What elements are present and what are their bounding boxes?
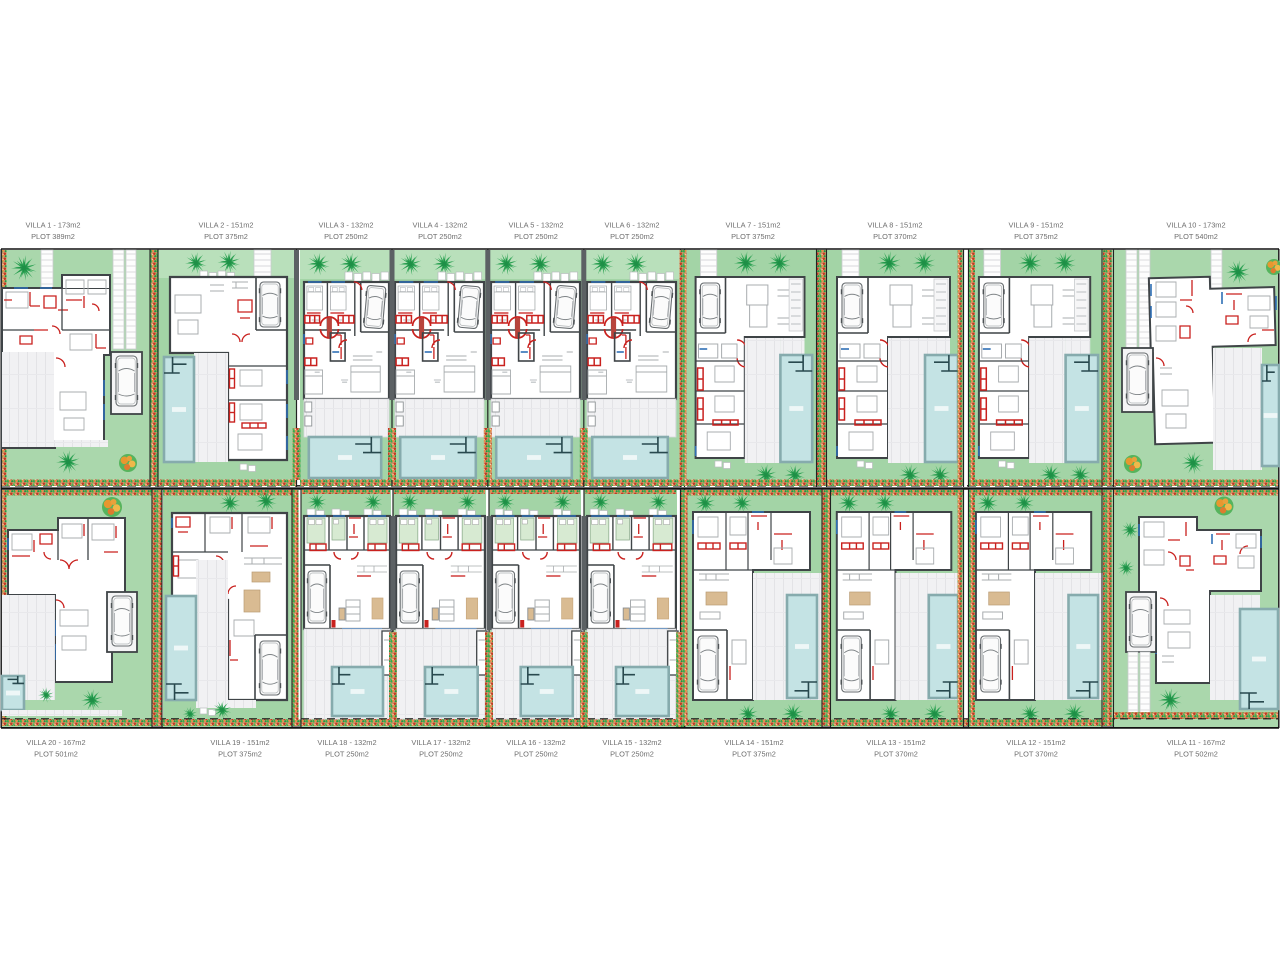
svg-text:PLOT 502m2: PLOT 502m2 xyxy=(1174,750,1218,759)
svg-text:PLOT 250m2: PLOT 250m2 xyxy=(610,750,654,759)
svg-text:PLOT 250m2: PLOT 250m2 xyxy=(419,750,463,759)
svg-text:VILLA 6 - 132m2: VILLA 6 - 132m2 xyxy=(604,221,659,230)
svg-text:PLOT 250m2: PLOT 250m2 xyxy=(418,232,462,241)
svg-text:PLOT 250m2: PLOT 250m2 xyxy=(610,232,654,241)
svg-text:VILLA 4 - 132m2: VILLA 4 - 132m2 xyxy=(412,221,467,230)
svg-text:PLOT 375m2: PLOT 375m2 xyxy=(204,232,248,241)
svg-text:VILLA 15 - 132m2: VILLA 15 - 132m2 xyxy=(602,738,661,747)
svg-text:PLOT 375m2: PLOT 375m2 xyxy=(731,232,775,241)
svg-text:VILLA 5 - 132m2: VILLA 5 - 132m2 xyxy=(508,221,563,230)
svg-text:PLOT 250m2: PLOT 250m2 xyxy=(514,750,558,759)
svg-text:PLOT 370m2: PLOT 370m2 xyxy=(873,232,917,241)
svg-text:PLOT 375m2: PLOT 375m2 xyxy=(1014,232,1058,241)
svg-text:PLOT 501m2: PLOT 501m2 xyxy=(34,750,78,759)
svg-text:VILLA 8 - 151m2: VILLA 8 - 151m2 xyxy=(867,221,922,230)
svg-text:VILLA 7 - 151m2: VILLA 7 - 151m2 xyxy=(725,221,780,230)
svg-text:PLOT 389m2: PLOT 389m2 xyxy=(31,232,75,241)
svg-text:VILLA 18 - 132m2: VILLA 18 - 132m2 xyxy=(317,738,376,747)
svg-text:VILLA 12 - 151m2: VILLA 12 - 151m2 xyxy=(1006,738,1065,747)
svg-text:VILLA 20 - 167m2: VILLA 20 - 167m2 xyxy=(26,738,85,747)
svg-text:PLOT 540m2: PLOT 540m2 xyxy=(1174,232,1218,241)
svg-text:VILLA 11 - 167m2: VILLA 11 - 167m2 xyxy=(1167,738,1226,747)
svg-text:PLOT 250m2: PLOT 250m2 xyxy=(514,232,558,241)
svg-text:VILLA 9 - 151m2: VILLA 9 - 151m2 xyxy=(1008,221,1063,230)
svg-text:VILLA 19 - 151m2: VILLA 19 - 151m2 xyxy=(210,738,269,747)
svg-text:PLOT 375m2: PLOT 375m2 xyxy=(218,750,262,759)
svg-text:VILLA 3 - 132m2: VILLA 3 - 132m2 xyxy=(318,221,373,230)
svg-text:VILLA 13 - 151m2: VILLA 13 - 151m2 xyxy=(866,738,925,747)
svg-text:VILLA 10 - 173m2: VILLA 10 - 173m2 xyxy=(1166,221,1225,230)
svg-text:VILLA 2 - 151m2: VILLA 2 - 151m2 xyxy=(198,221,253,230)
svg-text:VILLA 1 - 173m2: VILLA 1 - 173m2 xyxy=(25,221,80,230)
svg-text:VILLA 14 - 151m2: VILLA 14 - 151m2 xyxy=(724,738,783,747)
svg-text:PLOT 370m2: PLOT 370m2 xyxy=(874,750,918,759)
svg-text:PLOT 370m2: PLOT 370m2 xyxy=(1014,750,1058,759)
svg-text:PLOT 250m2: PLOT 250m2 xyxy=(325,750,369,759)
svg-text:PLOT 375m2: PLOT 375m2 xyxy=(732,750,776,759)
svg-text:VILLA 17 - 132m2: VILLA 17 - 132m2 xyxy=(411,738,470,747)
svg-text:VILLA 16 - 132m2: VILLA 16 - 132m2 xyxy=(506,738,565,747)
svg-text:PLOT 250m2: PLOT 250m2 xyxy=(324,232,368,241)
